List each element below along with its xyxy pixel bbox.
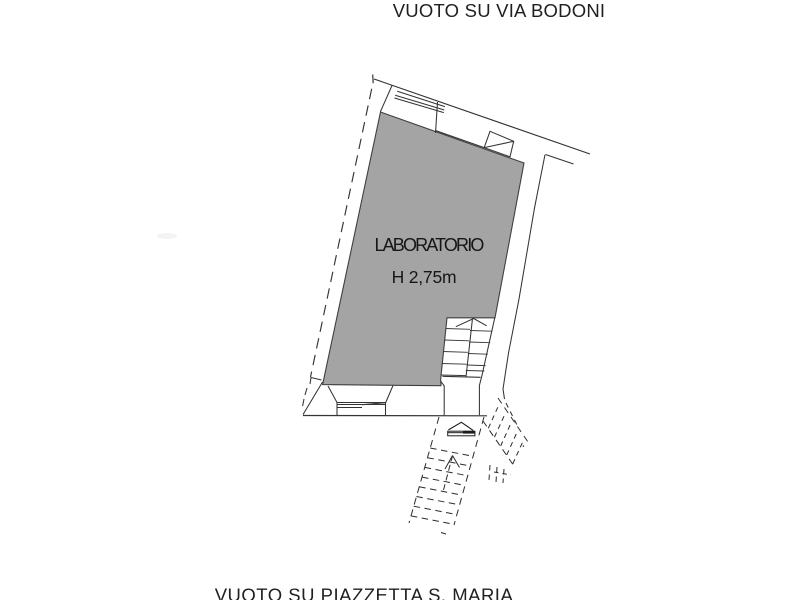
svg-text:VUOTO SU VIA BODONI: VUOTO SU VIA BODONI <box>393 0 606 21</box>
svg-text:LABORATORIO: LABORATORIO <box>374 235 484 255</box>
svg-text:VUOTO SU PIAZZETTA S. MARIA: VUOTO SU PIAZZETTA S. MARIA <box>215 585 514 600</box>
svg-text:H 2,75m: H 2,75m <box>392 267 457 287</box>
